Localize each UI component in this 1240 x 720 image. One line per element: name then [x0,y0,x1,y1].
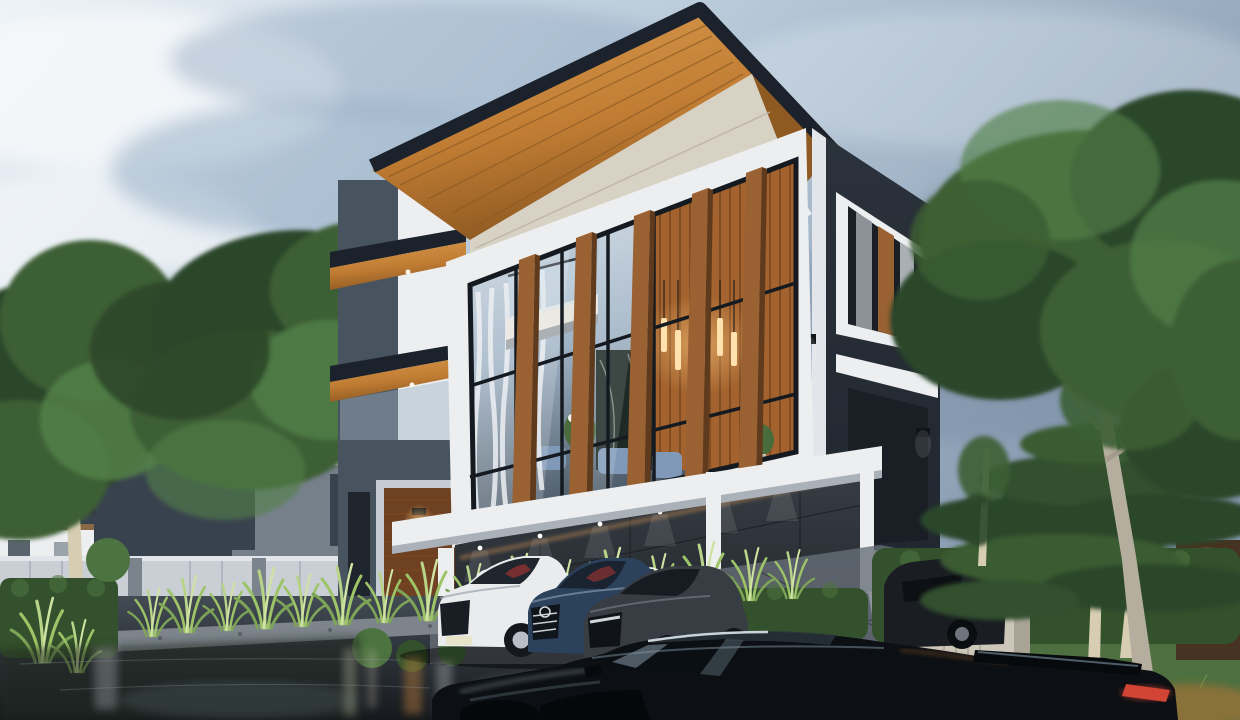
render-canvas [0,0,1240,720]
